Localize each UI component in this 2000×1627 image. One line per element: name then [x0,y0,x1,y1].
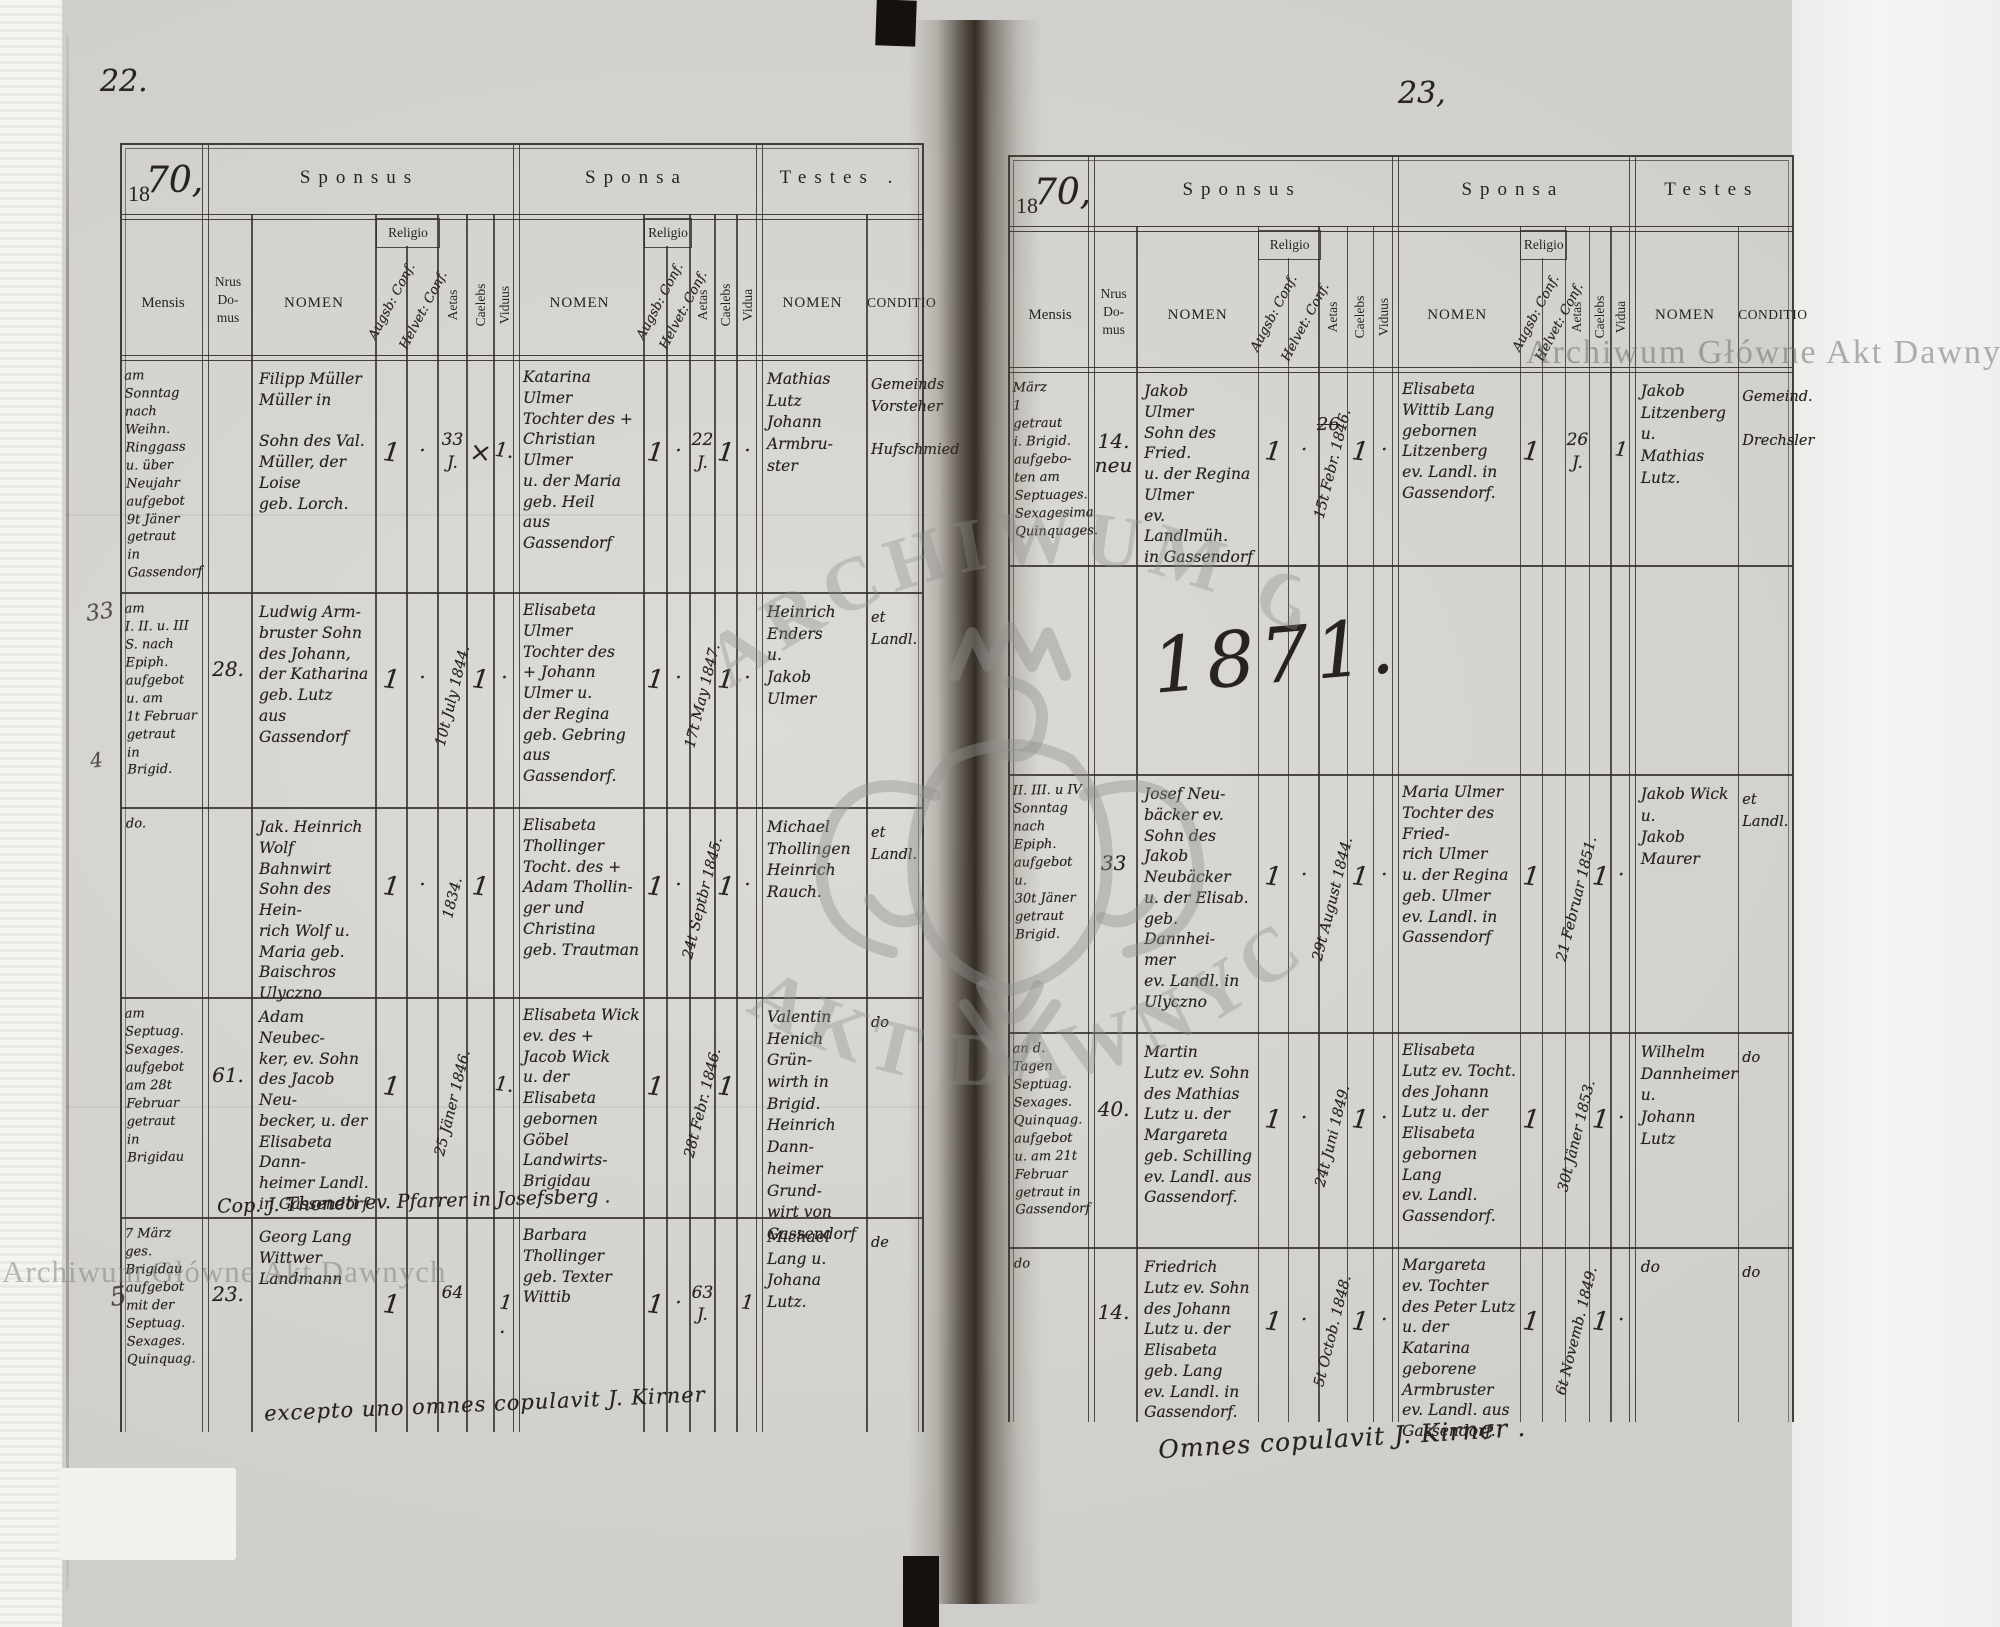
sponsus-religio-helvet-mark: · [406,663,440,691]
row-house-number: 40. [1090,1097,1137,1121]
margin-pencil-mark: 33 [84,598,115,627]
sponsa-vidua-mark: 1 [736,1289,760,1315]
header-separator [1010,226,1792,232]
sponsus-religio-augsb-mark: 1 [1257,860,1291,893]
section-sponsus: Sponsus [1090,179,1394,201]
register-scan: 22. 23, SponsusSponsaTestes .1870,Religi… [0,0,2000,1627]
row-conditio: do [871,1013,918,1035]
section-sponsus: Sponsus [204,167,515,189]
sponsa-religio-augsb-mark: 1 [1519,1305,1545,1338]
column-line [1318,226,1319,1422]
row-house-number: 33 [1090,851,1137,875]
section-divider-line [1392,157,1399,1422]
row-mensis: do [1014,1254,1086,1273]
row-sponsa-name: Elisabeta Thollinger Tocht. des + Adam T… [523,815,640,960]
row-sponsus-name: Adam Neubec- ker, ev. Sohn des Jacob Neu… [259,1007,371,1215]
sponsa-caelebs-mark: 1 [713,437,738,469]
row-testes-names: Jakob Wick u. Jakob Maurer [1641,784,1734,871]
column-line [1136,226,1137,1422]
sponsus-viduus-mark: · [1372,861,1395,887]
header-separator [122,355,922,361]
aetas-label: Aetas [1569,262,1585,372]
nomen-sponsus-label: NOMEN [1137,307,1258,324]
sponsus-birthdate: 29t August 1844. [1308,829,1357,969]
year-1871-inscription: 1871. [1148,600,1402,710]
sponsus-viduus-mark: 1. [493,437,517,463]
section-testes: Testes [1632,179,1792,201]
nomen-testes-label: NOMEN [758,295,867,312]
row-sponsus-name: Georg Lang Wittwer Landmann [259,1227,371,1289]
conditio-label: CONDITIO [867,295,922,311]
row-conditio: et Landl. [871,823,918,867]
column-line [493,214,494,1432]
sponsus-religio-helvet-mark: · [1287,860,1320,888]
conditio-label: CONDITIO [1738,307,1792,323]
row-sponsus-name: Martin Lutz ev. Sohn des Mathias Lutz u.… [1144,1042,1253,1208]
sponsa-vidua-mark: · [736,664,760,690]
aetas-label: Aetas [445,250,461,360]
sponsus-viduus-mark: · [1372,1305,1395,1331]
register-table-left-page: SponsusSponsaTestes .1870,ReligioAugsb: … [120,143,924,1432]
nrus-domus-label: Nrus Do- mus [204,273,252,328]
row-conditio: do [1742,1263,1788,1285]
viduus-label: Viduus [1376,262,1392,372]
column-line [251,214,252,1432]
row-mensis: 7 März ges. Brigidau aufgebot mit der Se… [125,1224,201,1369]
row-mensis: am Septuag. Sexages. aufgebot am 28t Feb… [125,1004,202,1167]
page-corner-patch [60,1468,236,1560]
row-house-number: 28. [204,657,252,681]
year-box: 1870, [1016,181,1090,225]
sponsus-religio-helvet-mark: · [1287,435,1320,463]
vidua-label: Vidua [1613,262,1629,372]
row-testes-names: Michael Thollingen Heinrich Rauch. [767,817,862,904]
nrus-domus-label: Nrus Do- mus [1090,285,1137,340]
row-testes-names: Michael Lang u. Johana Lutz. [767,1227,862,1314]
sponsa-religio-augsb-mark: 1 [1519,1104,1545,1137]
sponsus-viduus-mark: · [1372,1104,1395,1130]
section-divider-line [1629,157,1636,1422]
row-mensis: do. [126,814,200,833]
sponsus-caelebs-mark: 1 [465,664,495,697]
column-line [1738,226,1739,1422]
column-line [1520,226,1521,1422]
sponsus-caelebs-mark: 1 [1346,435,1376,468]
row-house-number: 14. [1090,1300,1137,1324]
sponsus-birthdate: 25 Jäner 1846. [428,1033,477,1173]
sponsus-religio-augsb-mark: 1 [1257,1305,1291,1338]
sponsa-vidua-mark: · [1610,1104,1633,1130]
row-separator [1010,565,1792,567]
sponsa-religio-helvet-mark: · [666,870,692,897]
sponsus-caelebs-mark: 1 [1346,860,1376,893]
nomen-testes-label: NOMEN [1632,307,1739,324]
sponsus-religio-helvet-mark: · [1287,1305,1320,1333]
section-testes: Testes . [758,167,922,189]
sponsa-caelebs-mark: 1 [1588,1104,1613,1136]
sponsa-religio-augsb-mark: 1 [642,1289,668,1322]
nomen-sponsus-label: NOMEN [252,295,376,312]
row-sponsus-name: Friedrich Lutz ev. Sohn des Johann Lutz … [1144,1257,1253,1423]
scan-edge-right [1792,0,2000,1627]
section-divider-line [513,145,520,1432]
sponsus-religio-helvet-mark: · [406,870,440,898]
sponsa-birthdate: 28t Febr. 1846. [678,1033,727,1173]
sponsa-religio-augsb-mark: 1 [642,1071,668,1104]
register-table-right-page: SponsusSponsaTestes1870,ReligioAugsb: Co… [1008,155,1794,1422]
margin-pencil-mark: 5 [108,1281,129,1313]
sponsa-religio-augsb-mark: 1 [642,870,668,903]
row-house-number: 14. neu [1090,429,1137,477]
sponsus-caelebs-mark: 1 [1346,1104,1376,1137]
aetas-label: Aetas [1325,262,1341,372]
year-box: 1870, [128,169,204,213]
binding-clamp-top [875,0,917,47]
sponsa-religio-augsb-mark: 1 [1519,436,1545,469]
row-conditio: de [871,1233,918,1255]
row-testes-names: do [1641,1257,1734,1279]
sponsa-vidua-mark: · [1610,861,1633,887]
row-mensis: März 1 getraut i. Brigid. aufgebo- ten a… [1013,378,1088,541]
mensis-label: Mensis [1010,307,1090,324]
column-line [1565,226,1566,1422]
row-mensis: am I. II. u. III S. nach Epiph. aufgebot… [124,599,201,780]
row-conditio: et Landl. [1742,790,1788,834]
sponsa-age: 26 J. [1561,429,1593,475]
sponsa-religio-augsb-mark: 1 [642,664,668,697]
sponsus-religio-helvet-mark: · [1287,1103,1320,1131]
row-separator [122,592,922,594]
sponsus-religio-augsb-mark: 1 [1257,1103,1291,1136]
column-line [466,214,467,1432]
sponsa-religio-augsb-mark: 1 [1519,860,1545,893]
column-line [689,214,690,1432]
religio-sub-line [666,246,667,1432]
margin-pencil-mark: 4 [88,747,104,773]
caelebs-label: Caelebs [1592,262,1608,372]
sponsa-caelebs-mark: 1 [713,664,738,696]
row-conditio: do [1742,1048,1788,1070]
row-separator [122,1217,922,1219]
sponsa-birthdate: 17t May 1847. [678,626,727,766]
row-mensis: II. III. u IV Sonntag nach Epiph. aufgeb… [1013,781,1088,944]
sponsus-age: 64 [434,1282,471,1305]
religio-sub-line [406,246,407,1432]
sponsa-age: 63 J. [686,1282,719,1328]
sponsa-birthdate: 30t Jäner 1853. [1553,1066,1602,1206]
page-edge-line [66,34,69,1590]
sponsa-religio-augsb-mark: 1 [642,437,668,470]
row-sponsus-name: Filipp Müller Müller in Sohn des Val. Mü… [259,369,371,514]
row-testes-names: Valentin Henich Grün- wirth in Brigid. H… [767,1007,862,1246]
viduus-label: Viduus [497,250,513,360]
header-separator [1010,367,1792,373]
column-line [866,214,867,1432]
paper-crease [66,514,926,516]
year-handwritten: 70, [1034,172,1091,213]
caelebs-label: Caelebs [718,250,734,360]
row-separator [1010,1247,1792,1249]
row-sponsus-name: Jak. Heinrich Wolf Bahnwirt Sohn des Hei… [259,817,371,1004]
row-mensis: am Sonntag nach Weihn. Ringgass u. über … [124,366,202,583]
sponsus-birthdate: 10t July 1844. [428,626,477,766]
row-sponsa-name: Elisabeta Ulmer Tochter des + Johann Ulm… [523,600,640,787]
row-sponsa-name: Katarina Ulmer Tochter des + Christian U… [523,367,640,554]
column-line [1610,226,1611,1422]
row-conditio: et Landl. [871,608,918,652]
row-house-number: 61. [204,1063,252,1087]
column-line [1589,226,1590,1422]
column-line [736,214,737,1432]
sponsa-vidua-mark: · [736,437,760,463]
binding-clamp-bottom [903,1556,939,1627]
sponsus-caelebs-mark: 1 [465,870,495,903]
sponsa-caelebs-mark: 1 [1588,1305,1613,1337]
sponsus-religio-augsb-mark: 1 [374,870,408,904]
sponsus-religio-augsb-mark: 1 [374,436,408,470]
nomen-sponsa-label: NOMEN [515,295,644,312]
row-separator [1010,1032,1792,1034]
sponsus-viduus-mark: 1. [493,1071,517,1097]
paper-crease [66,1106,926,1108]
row-conditio: Gemeind. Drechsler [1742,387,1788,452]
nomen-sponsa-label: NOMEN [1394,307,1520,324]
sponsa-vidua-mark: · [1610,1305,1633,1331]
section-sponsa: Sponsa [515,167,758,189]
sponsa-caelebs-mark: 1 [713,870,738,902]
caelebs-label: Caelebs [1352,262,1368,372]
sponsus-age-crossed: 26 [1317,414,1340,435]
row-testes-names: Mathias Lutz Johann Armbru- ster [767,369,862,477]
column-line [643,214,644,1432]
sponsa-vidua-mark: · [736,870,760,896]
sponsus-caelebs-mark: 1 [1346,1305,1376,1338]
year-handwritten: 70, [146,160,203,201]
sponsus-religio-augsb-mark: 1 [374,1288,408,1322]
mensis-label: Mensis [122,295,204,312]
row-sponsa-name: Maria Ulmer Tochter des Fried- rich Ulme… [1402,782,1516,948]
header-separator [122,214,922,220]
row-separator [1010,774,1792,776]
section-divider-line [756,145,763,1432]
sponsus-religio-augsb-mark: 1 [1257,435,1291,468]
row-house-number: 23. [204,1282,252,1306]
sponsus-viduus-mark: · [493,664,517,690]
row-sponsa-name: Elisabeta Wick ev. des + Jacob Wick u. d… [523,1005,640,1192]
column-line [1258,226,1259,1422]
sponsa-birthdate: 21 Februar 1851. [1553,829,1602,969]
row-sponsus-name: Josef Neu- bäcker ev. Sohn des Jakob Neu… [1144,784,1253,1012]
column-line [375,214,376,1432]
row-testes-names: Heinrich Enders u. Jakob Ulmer [767,602,862,710]
sponsus-birthdate: 24t Juni 1849. [1308,1066,1357,1206]
row-mensis: an d. Tagen Septuag. Sexages. Quinquag. … [1012,1039,1087,1220]
row-separator [122,997,922,999]
sponsa-caelebs-mark: 1 [1588,861,1613,893]
sponsus-religio-augsb-mark: 1 [374,1070,408,1104]
column-line [1373,226,1374,1422]
caelebs-label: Caelebs [473,250,489,360]
row-sponsa-name: Barbara Thollinger geb. Texter Wittib [523,1225,640,1308]
row-conditio: Gemeinds Vorsteher Hufschmied [871,375,918,462]
page-number-right: 23, [1398,76,1446,111]
section-sponsa: Sponsa [1394,179,1632,201]
row-sponsa-name: Elisabeta Lutz ev. Tocht. des Johann Lut… [1402,1040,1516,1227]
sponsa-religio-helvet-mark: · [666,664,692,691]
section-divider-line [1088,157,1095,1422]
section-divider-line [202,145,209,1432]
row-testes-names: Jakob Litzenberg u. Mathias Lutz. [1641,381,1734,489]
sponsus-caelebs-mark: × [465,437,495,470]
vidua-label: Vidua [740,250,756,360]
row-separator [122,807,922,809]
sponsus-viduus-mark: · [1372,436,1395,462]
column-line [437,214,438,1432]
page-number-left: 22. [100,64,148,99]
row-sponsus-name: Jakob Ulmer Sohn des Fried. u. der Regin… [1144,381,1253,568]
scan-edge-left [0,0,62,1627]
sponsa-caelebs-mark: 1 [713,1071,738,1103]
row-sponsus-name: Ludwig Arm- bruster Sohn des Johann, der… [259,602,371,747]
sponsus-religio-augsb-mark: 1 [374,663,408,697]
column-line [714,214,715,1432]
row-sponsa-name: Elisabeta Wittib Lang gebornen Litzenber… [1402,379,1516,504]
sponsus-age: 33 J. [434,429,471,475]
aetas-label: Aetas [695,250,711,360]
sponsa-vidua-mark: 1 [1610,436,1633,462]
row-testes-names: Wilhelm Dannheimer u. Johann Lutz [1641,1042,1734,1150]
